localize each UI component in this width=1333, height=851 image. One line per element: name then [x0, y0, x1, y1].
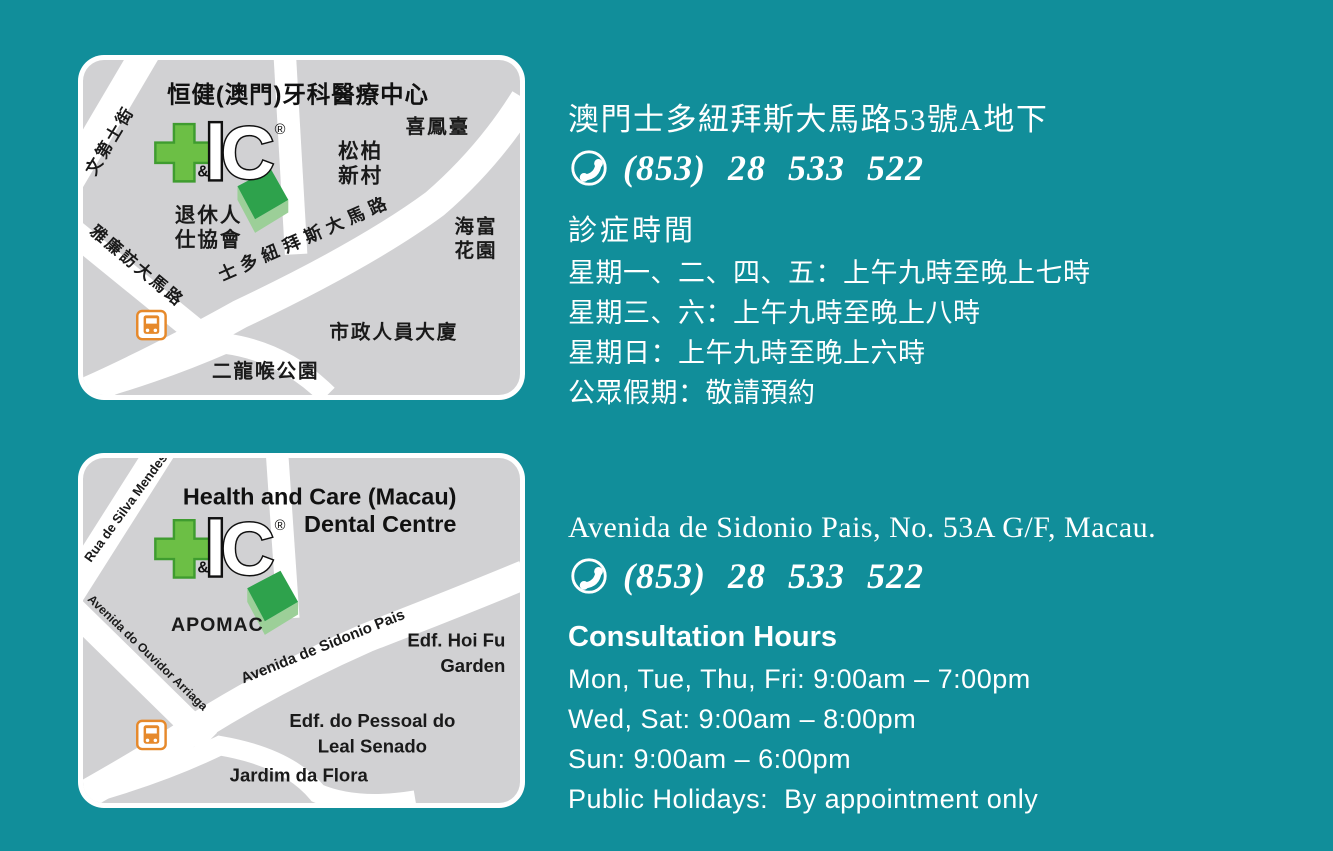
clinic-logo: & C ®	[155, 112, 285, 195]
flyer-background: 文第士街 雅廉訪大馬路 士多紐拜斯大馬路 & C ®	[0, 0, 1333, 851]
hours-line-cn-2: 星期三、六：上午九時至晚上八時	[568, 293, 1091, 333]
info-section-english: Avenida de Sidonio Pais, No. 53A G/F, Ma…	[568, 508, 1156, 819]
hours-line-cn-1: 星期一、二、四、五：上午九時至晚上七時	[568, 253, 1091, 293]
map-card-chinese: 文第士街 雅廉訪大馬路 士多紐拜斯大馬路 & C ®	[78, 55, 525, 400]
address-english: Avenida de Sidonio Pais, No. 53A G/F, Ma…	[568, 508, 1156, 548]
logo-ampersand: &	[197, 164, 208, 181]
map-card-english: Rua de Silva Mendes Avenida do Ouvidor A…	[78, 453, 525, 808]
map-chinese-svg: 文第士街 雅廉訪大馬路 士多紐拜斯大馬路 & C ®	[83, 60, 520, 395]
hours-line-en-4: Public Holidays: By appointment only	[568, 779, 1156, 819]
map-title-english-line1: Health and Care (Macau)	[183, 484, 457, 510]
place-chung-pak-line2: 新村	[338, 163, 383, 187]
phone-icon	[568, 147, 610, 189]
map-chinese: 文第士街 雅廉訪大馬路 士多紐拜斯大馬路 & C ®	[83, 60, 520, 395]
hours-line-en-1: Mon, Tue, Thu, Fri: 9:00am – 7:00pm	[568, 659, 1156, 699]
clinic-logo: & C ®	[155, 508, 285, 591]
place-municipal-staff-building: 市政人員大廈	[329, 321, 458, 344]
phone-row-english: (853) 28 533 522	[568, 553, 1156, 599]
place-leal-senado-line1: Edf. do Pessoal do	[289, 710, 455, 731]
address-chinese: 澳門士多紐拜斯大馬路53號A地下	[568, 100, 1091, 140]
logo-letter-c: C	[221, 112, 275, 195]
place-apomac-cn-line1: 退休人	[175, 203, 242, 227]
map-english-svg: Rua de Silva Mendes Avenida do Ouvidor A…	[83, 458, 520, 803]
place-hoi-fu-line1: Edf. Hoi Fu	[407, 630, 505, 651]
hours-title-english: Consultation Hours	[568, 618, 1156, 656]
hours-line-cn-3: 星期日：上午九時至晚上六時	[568, 333, 1091, 373]
phone-row-chinese: (853) 28 533 522	[568, 145, 1091, 191]
bus-stop-icon	[137, 721, 165, 749]
place-flora-garden-cn: 二龍喉公園	[212, 360, 319, 383]
map-english: Rua de Silva Mendes Avenida do Ouvidor A…	[83, 458, 520, 803]
place-hei-fung-toi: 喜鳳臺	[406, 115, 470, 138]
place-jardim-da-flora: Jardim da Flora	[230, 765, 369, 786]
map-title-english-line2: Dental Centre	[304, 511, 456, 537]
place-apomac-cn-line2: 仕協會	[174, 227, 242, 251]
phone-number-english: (853) 28 533 522	[623, 555, 924, 597]
place-hoi-fu-cn-line1: 海富	[455, 215, 498, 238]
hours-line-cn-4: 公眾假期：敬請預約	[568, 373, 1091, 413]
logo-registered-mark: ®	[275, 122, 286, 138]
place-leal-senado-line2: Leal Senado	[318, 736, 427, 757]
place-hoi-fu-cn-line2: 花園	[455, 239, 498, 262]
hours-list-chinese: 星期一、二、四、五：上午九時至晚上七時 星期三、六：上午九時至晚上八時 星期日：…	[568, 253, 1091, 413]
hours-list-english: Mon, Tue, Thu, Fri: 9:00am – 7:00pm Wed,…	[568, 659, 1156, 819]
hours-title-chinese: 診症時間	[568, 212, 1091, 250]
map-title-chinese: 恒健(澳門)牙科醫療中心	[167, 82, 429, 108]
bus-stop-icon	[137, 311, 165, 339]
hours-line-en-3: Sun: 9:00am – 6:00pm	[568, 739, 1156, 779]
logo-letter-c: C	[221, 508, 275, 591]
place-apomac: APOMAC	[171, 614, 264, 636]
logo-registered-mark: ®	[275, 518, 286, 534]
phone-number-chinese: (853) 28 533 522	[623, 147, 924, 189]
hours-line-en-2: Wed, Sat: 9:00am – 8:00pm	[568, 699, 1156, 739]
phone-icon	[568, 555, 610, 597]
logo-ampersand: &	[197, 560, 208, 577]
place-chung-pak-line1: 松柏	[338, 139, 383, 163]
place-hoi-fu-line2: Garden	[440, 655, 505, 676]
info-section-chinese: 澳門士多紐拜斯大馬路53號A地下 (853) 28 533 522 診症時間 星…	[568, 100, 1091, 413]
